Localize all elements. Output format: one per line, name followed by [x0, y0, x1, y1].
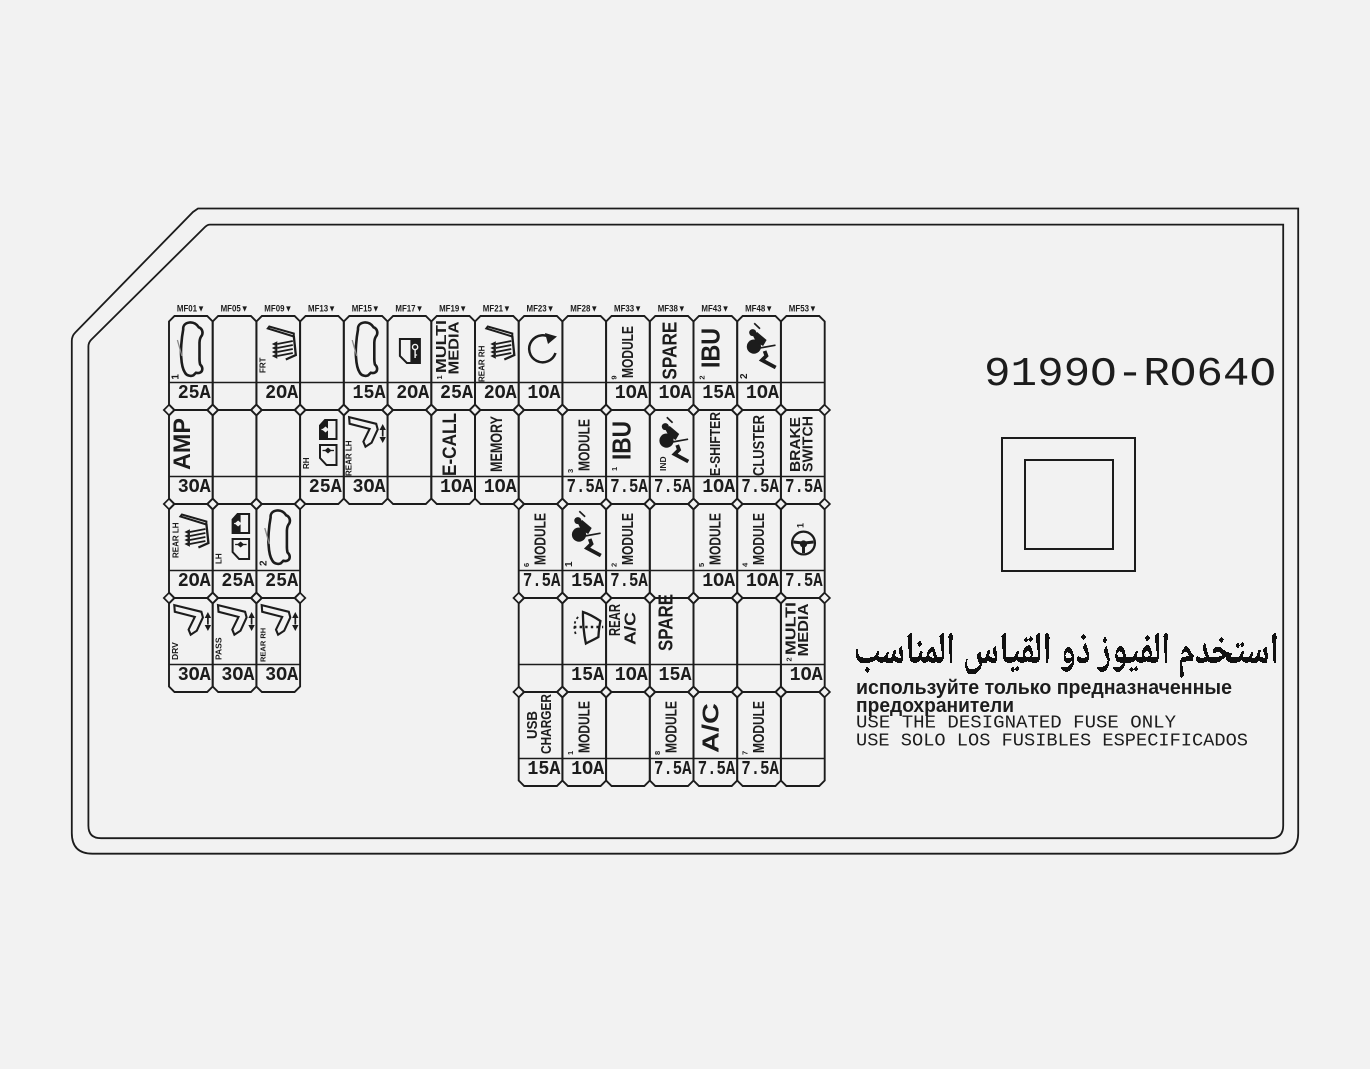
- svg-text:MF05▼: MF05▼: [221, 304, 249, 314]
- svg-text:7.5A: 7.5A: [741, 476, 779, 498]
- svg-text:7.5A: 7.5A: [610, 476, 648, 498]
- svg-text:1: 1: [610, 467, 619, 471]
- svg-text:MF23▼: MF23▼: [527, 304, 555, 314]
- svg-text:7.5A: 7.5A: [523, 570, 561, 592]
- svg-text:PASS: PASS: [214, 637, 224, 660]
- svg-text:3OA: 3OA: [265, 664, 299, 686]
- svg-text:A/C: A/C: [623, 612, 640, 645]
- svg-text:DRV: DRV: [170, 642, 180, 660]
- svg-text:CHARGER: CHARGER: [539, 694, 555, 754]
- svg-text:1OA: 1OA: [746, 570, 780, 592]
- svg-text:MF15▼: MF15▼: [352, 304, 380, 314]
- svg-text:1OA: 1OA: [484, 476, 518, 498]
- svg-text:MF13▼: MF13▼: [308, 304, 336, 314]
- svg-text:MF21▼: MF21▼: [483, 304, 511, 314]
- svg-text:15A: 15A: [571, 570, 605, 592]
- svg-text:1OA: 1OA: [746, 382, 780, 404]
- svg-text:MF17▼: MF17▼: [395, 304, 423, 314]
- svg-text:1: 1: [171, 374, 182, 380]
- svg-text:15A: 15A: [527, 758, 561, 780]
- svg-text:2: 2: [785, 657, 794, 661]
- svg-text:REAR LH: REAR LH: [344, 440, 353, 476]
- svg-text:15A: 15A: [571, 664, 605, 686]
- svg-text:3OA: 3OA: [178, 476, 212, 498]
- svg-text:2: 2: [698, 375, 707, 379]
- svg-text:1OA: 1OA: [659, 382, 693, 404]
- svg-text:9199O-RO64O: 9199O-RO64O: [984, 352, 1276, 398]
- svg-text:MODULE: MODULE: [707, 513, 724, 565]
- svg-text:1: 1: [796, 523, 806, 528]
- svg-text:4: 4: [741, 562, 750, 567]
- svg-text:2: 2: [610, 563, 619, 567]
- svg-text:MF48▼: MF48▼: [745, 304, 773, 314]
- svg-text:MODULE: MODULE: [620, 326, 637, 378]
- svg-text:5: 5: [697, 563, 706, 567]
- svg-text:7.5A: 7.5A: [698, 758, 736, 780]
- svg-text:MEDIA: MEDIA: [795, 603, 812, 656]
- svg-text:2OA: 2OA: [178, 570, 212, 592]
- svg-text:2OA: 2OA: [484, 382, 518, 404]
- svg-text:MF43▼: MF43▼: [701, 304, 729, 314]
- svg-text:REAR RH: REAR RH: [258, 628, 267, 662]
- svg-text:MODULE: MODULE: [751, 513, 768, 565]
- svg-text:MEMORY: MEMORY: [487, 416, 506, 472]
- svg-text:1OA: 1OA: [615, 664, 649, 686]
- svg-text:E-CALL: E-CALL: [440, 413, 461, 476]
- svg-text:MODULE: MODULE: [664, 701, 681, 753]
- svg-text:1OA: 1OA: [571, 758, 605, 780]
- svg-text:MF09▼: MF09▼: [264, 304, 292, 314]
- svg-text:7.5A: 7.5A: [610, 570, 648, 592]
- svg-text:25A: 25A: [221, 570, 255, 592]
- svg-text:3OA: 3OA: [221, 664, 255, 686]
- svg-text:MF28▼: MF28▼: [570, 304, 598, 314]
- svg-text:7.5A: 7.5A: [654, 476, 692, 498]
- svg-text:MF01▼: MF01▼: [177, 304, 205, 314]
- svg-text:MODULE: MODULE: [751, 701, 768, 753]
- svg-text:2OA: 2OA: [265, 382, 299, 404]
- svg-text:1: 1: [566, 751, 575, 755]
- svg-text:7.5A: 7.5A: [567, 476, 605, 498]
- svg-text:1OA: 1OA: [527, 382, 561, 404]
- svg-text:7: 7: [741, 751, 750, 755]
- svg-text:REAR LH: REAR LH: [172, 522, 181, 558]
- svg-text:7.5A: 7.5A: [785, 476, 823, 498]
- svg-text:25A: 25A: [178, 382, 212, 404]
- svg-text:MODULE: MODULE: [533, 513, 550, 565]
- svg-text:25A: 25A: [309, 476, 343, 498]
- svg-text:IND: IND: [658, 456, 668, 471]
- svg-text:1OA: 1OA: [615, 382, 649, 404]
- svg-text:CLUSTER: CLUSTER: [751, 415, 768, 476]
- svg-text:MF33▼: MF33▼: [614, 304, 642, 314]
- svg-text:IBU: IBU: [695, 328, 725, 368]
- svg-text:MF38▼: MF38▼: [658, 304, 686, 314]
- svg-text:1OA: 1OA: [440, 476, 474, 498]
- svg-text:8: 8: [653, 751, 662, 755]
- svg-text:MODULE: MODULE: [576, 701, 593, 753]
- svg-text:SWITCH: SWITCH: [799, 416, 816, 472]
- svg-text:MODULE: MODULE: [576, 419, 593, 471]
- svg-text:2: 2: [258, 560, 269, 566]
- svg-text:15A: 15A: [659, 664, 693, 686]
- svg-text:AMP: AMP: [169, 418, 196, 470]
- svg-text:SPARE: SPARE: [656, 594, 678, 651]
- svg-text:REAR: REAR: [607, 604, 624, 636]
- svg-text:6: 6: [522, 563, 531, 567]
- svg-text:15A: 15A: [353, 382, 387, 404]
- svg-text:25A: 25A: [265, 570, 299, 592]
- svg-text:3: 3: [566, 469, 575, 473]
- svg-text:15A: 15A: [702, 382, 736, 404]
- svg-text:1OA: 1OA: [702, 476, 736, 498]
- svg-text:1OA: 1OA: [702, 570, 736, 592]
- svg-text:MEDIA: MEDIA: [445, 321, 462, 374]
- svg-text:25A: 25A: [440, 382, 474, 404]
- svg-text:RH: RH: [302, 457, 311, 469]
- svg-text:7.5A: 7.5A: [654, 758, 692, 780]
- svg-text:2OA: 2OA: [396, 382, 430, 404]
- svg-text:9: 9: [610, 375, 619, 379]
- svg-text:REAR RH: REAR RH: [478, 345, 487, 382]
- svg-text:IBU: IBU: [606, 421, 636, 460]
- svg-text:7.5A: 7.5A: [741, 758, 779, 780]
- svg-text:MF19▼: MF19▼: [439, 304, 467, 314]
- svg-text:MF53▼: MF53▼: [789, 304, 817, 314]
- svg-text:E-SHIFTER: E-SHIFTER: [708, 412, 724, 476]
- svg-text:FRT: FRT: [258, 357, 267, 373]
- svg-text:1: 1: [564, 561, 575, 567]
- svg-text:USE SOLO LOS FUSIBLES ESPECIFI: USE SOLO LOS FUSIBLES ESPECIFICADOS: [856, 731, 1248, 752]
- svg-text:SPARE: SPARE: [659, 322, 681, 380]
- svg-text:3OA: 3OA: [353, 476, 387, 498]
- svg-text:1OA: 1OA: [790, 664, 824, 686]
- svg-text:LH: LH: [215, 553, 224, 564]
- svg-text:2: 2: [739, 373, 750, 379]
- svg-text:A/C: A/C: [698, 703, 724, 753]
- svg-text:MODULE: MODULE: [620, 513, 637, 565]
- svg-text:3OA: 3OA: [178, 664, 212, 686]
- svg-text:1: 1: [435, 375, 444, 379]
- svg-text:7.5A: 7.5A: [785, 570, 823, 592]
